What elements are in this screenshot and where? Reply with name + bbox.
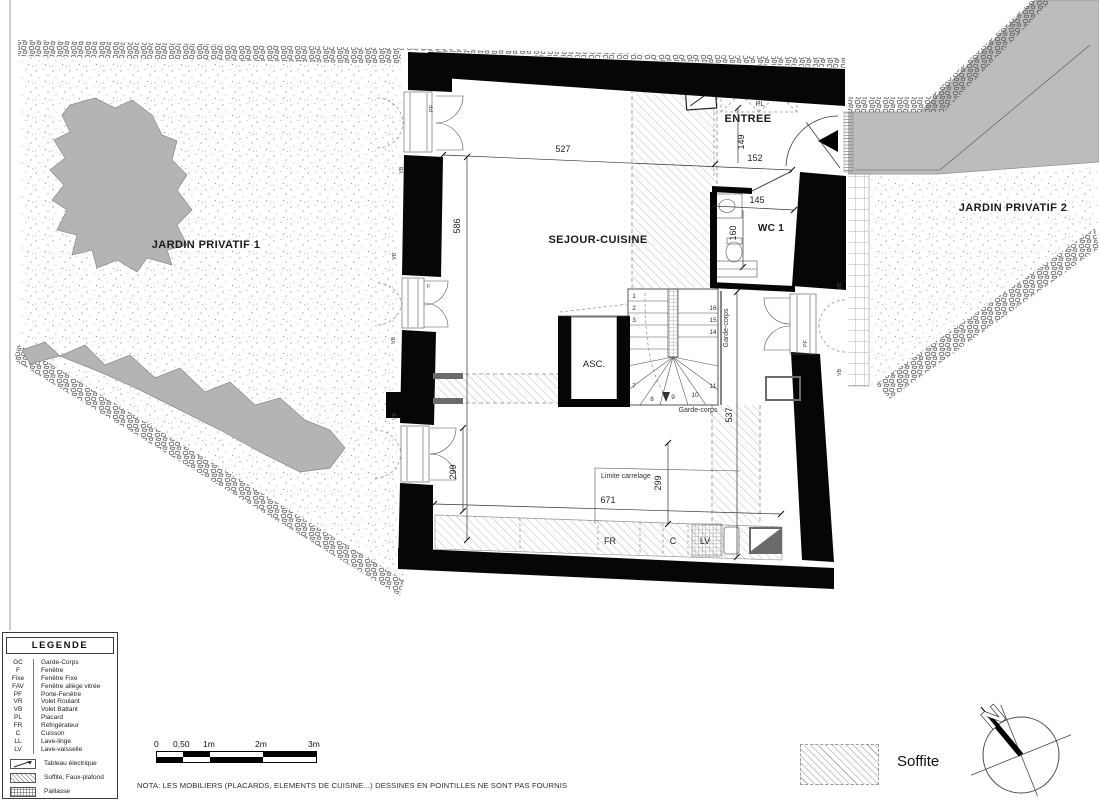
dim-586: 586 xyxy=(452,218,462,233)
soffite-hatch-icon xyxy=(10,773,36,783)
legend-item: FAVFenêtre allège vitrée xyxy=(3,683,117,691)
garden-2: JARDIN PRIVATIF 2 xyxy=(844,0,1099,399)
svg-text:14: 14 xyxy=(709,329,717,336)
entrance-threshold xyxy=(844,112,853,172)
legend-item: CCuisson xyxy=(3,730,117,738)
svg-text:8: 8 xyxy=(650,396,654,403)
svg-text:11: 11 xyxy=(710,383,717,390)
limite-carrelage-label: Limite carrelage xyxy=(601,473,651,480)
legend-panel: LEGENDE GCGarde-Corps FFenêtre FixeFenêt… xyxy=(2,632,118,799)
pf-label: PF xyxy=(803,339,809,347)
svg-text:15: 15 xyxy=(709,317,717,324)
wall-stub-a xyxy=(433,373,463,379)
legend-title: LEGENDE xyxy=(6,637,114,654)
legend-title-text: LEGENDE xyxy=(32,640,88,651)
dim-145: 145 xyxy=(749,195,764,205)
svg-text:7: 7 xyxy=(632,383,636,390)
tableau-electrique-icon xyxy=(10,759,36,769)
dim-671: 671 xyxy=(600,495,615,505)
vb-label: VB xyxy=(392,252,398,260)
wall-stub-b xyxy=(433,398,463,404)
soffite-swatch xyxy=(800,744,879,785)
wc-label: WC 1 xyxy=(758,223,784,234)
legend-symbols: Tableau électrique Soffite, Faux-plafond… xyxy=(3,757,117,799)
vb-label: VB xyxy=(837,368,843,376)
vb-label: VB xyxy=(837,282,843,290)
legend-item: PFPorte-Fenêtre xyxy=(3,691,117,699)
staircase: 1 2 3 7 8 9 10 11 14 15 16 Garde-corps G… xyxy=(628,289,730,414)
dishwasher-label: LV xyxy=(700,536,710,546)
legend-item: Tableau électrique xyxy=(3,757,117,771)
svg-text:1: 1 xyxy=(632,293,636,300)
dim-527: 527 xyxy=(555,144,570,154)
entree-label: ENTREE xyxy=(724,113,771,125)
vb-label: VB xyxy=(392,412,398,420)
legend-item: VBVolet Battant xyxy=(3,706,117,714)
garde-corps-label-v: Garde-corps xyxy=(723,308,730,347)
soffite-key-label: Soffite xyxy=(897,753,939,770)
elevator: ASC. xyxy=(558,304,630,407)
legend-item: PLPlacard xyxy=(3,714,117,722)
svg-text:9: 9 xyxy=(671,394,675,401)
elevator-label: ASC. xyxy=(583,359,605,370)
dim-152: 152 xyxy=(747,153,762,163)
access-ramp xyxy=(846,0,1099,174)
floor-plan-drawing: JARDIN PRIVATIF 1 JARDIN PRIVATIF 2 xyxy=(0,0,1099,800)
sejour-label: SEJOUR-CUISINE xyxy=(548,234,647,246)
svg-text:10: 10 xyxy=(691,392,699,399)
garden1-label: JARDIN PRIVATIF 1 xyxy=(152,239,260,251)
floor-plan-sheet: JARDIN PRIVATIF 1 JARDIN PRIVATIF 2 xyxy=(0,0,1099,800)
dim-160: 160 xyxy=(728,225,738,240)
legend-item: LVLave-vaisselle xyxy=(3,746,117,754)
dim-299-door: 299 xyxy=(448,464,458,479)
cooktop-label: C xyxy=(670,536,677,546)
garden2-label: JARDIN PRIVATIF 2 xyxy=(959,202,1067,214)
legend-item: Soffite, Faux-plafond xyxy=(3,771,117,785)
wall-right-wc xyxy=(792,172,846,290)
dim-537: 537 xyxy=(724,407,734,422)
legend-items: GCGarde-Corps FFenêtre FixeFenêtre Fixe … xyxy=(3,659,117,754)
corner-unit xyxy=(749,527,782,554)
legend-item: FFenêtre xyxy=(3,667,117,675)
svg-text:16: 16 xyxy=(709,305,717,312)
north-arrow-icon: N xyxy=(955,690,1080,800)
legend-item: LLLave-linge xyxy=(3,738,117,746)
legend-item: FixeFenêtre Fixe xyxy=(3,675,117,683)
dim-149: 149 xyxy=(736,134,746,149)
north-letter: N xyxy=(976,699,1010,735)
pf-label: PF xyxy=(429,104,435,112)
placard-label: PL xyxy=(756,101,765,108)
svg-text:2: 2 xyxy=(632,305,636,312)
legend-item: GCGarde-Corps xyxy=(3,659,117,667)
vb-label: VB xyxy=(399,166,405,174)
svg-text:3: 3 xyxy=(632,317,636,324)
north-compass: N xyxy=(955,690,1080,800)
dim-299-carrelage: 299 xyxy=(653,475,663,490)
vb-label: VB xyxy=(391,336,397,344)
legend-item: VRVolet Roulant xyxy=(3,698,117,706)
legend-item: FRRéfrigérateur xyxy=(3,722,117,730)
nota-text: NOTA: LES MOBILIERS (PLACARDS, ELEMENTS … xyxy=(137,781,567,790)
fridge-label: FR xyxy=(604,536,616,546)
scale-bar-graphic xyxy=(156,751,317,763)
scale-bar: 0 0,50 1m 2m 3m xyxy=(156,739,326,769)
garde-corps-label-h: Garde-corps xyxy=(679,407,718,414)
stair-spine-wall xyxy=(668,289,678,357)
legend-item: Paillasse xyxy=(3,785,117,799)
paillasse-grid-icon xyxy=(10,787,36,797)
scale-bar-labels: 0 0,50 1m 2m 3m xyxy=(156,739,326,750)
